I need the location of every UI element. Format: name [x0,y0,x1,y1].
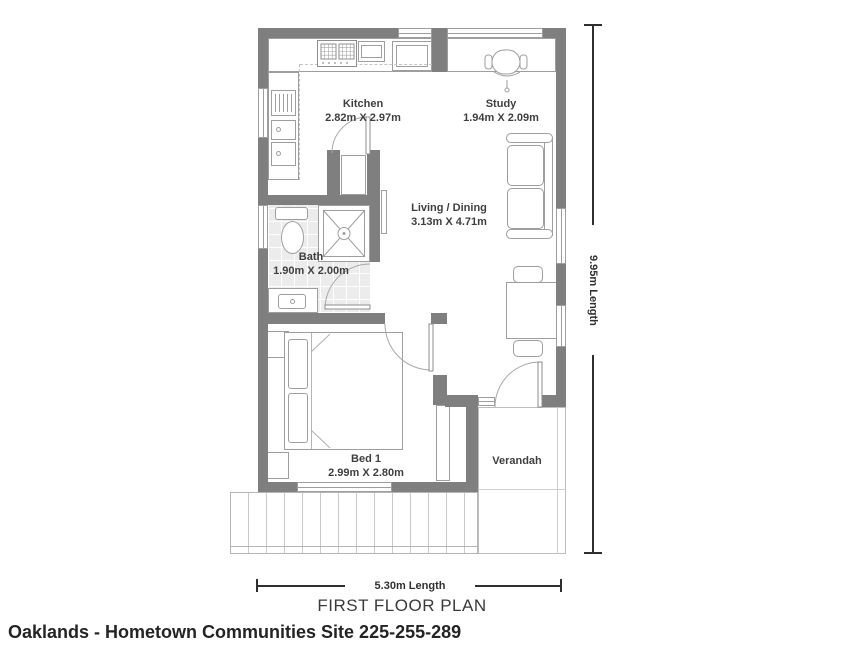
plan-title: FIRST FLOOR PLAN [192,596,612,616]
vestibule-pier-1 [327,150,340,197]
sofa-back [544,137,553,236]
entry-wall-right [540,395,566,407]
bed1-dims: 2.99m X 2.80m [303,466,429,480]
entry-door [495,362,542,407]
dining-table [506,282,557,339]
window-bedroom-bottom [297,482,392,492]
wall-bedroom-top-b [431,313,447,324]
deck-rail-line [231,546,477,547]
wall-top-left [258,28,398,38]
kitchen-sink-1 [271,120,296,140]
window-top-study [447,28,543,38]
window-kitchen-left [258,88,268,138]
window-living-right-1 [556,208,566,264]
entry-door-arc [495,362,540,407]
nook-wall-v [466,407,478,482]
hall-cupboard [341,155,366,195]
dimension-v-tick-top [584,24,602,26]
window-bath-left [258,205,268,249]
bath-label: Bath 1.90m X 2.00m [248,250,374,278]
wall-left-a [258,28,268,88]
verandah-floor-line-h [478,489,566,490]
kitchen-dims: 2.82m X 2.97m [300,111,426,125]
overhead-cabinet-dash-h [300,64,432,65]
nook-wall-h [445,395,478,407]
site-caption: Oaklands - Hometown Communities Site 225… [8,622,461,643]
dimension-v-tick-bottom [584,552,602,554]
dimension-h-label: 5.30m Length [345,578,475,594]
verandah-floor [478,407,566,554]
wall-right-b [556,264,566,305]
window-top-kitchen [398,28,432,38]
kitchen-appliance-inner [361,45,382,58]
entry-sidelight-window [478,397,495,406]
sofa-cushion-2 [507,188,544,229]
kitchen-sink-2 [271,142,296,166]
kitchen-name: Kitchen [300,97,426,111]
study-dims: 1.94m X 2.09m [438,111,564,125]
dimension-h-tick-right [560,579,562,592]
sofa-cushion-1 [507,145,544,186]
pillow-2 [288,393,308,443]
pillow-1 [288,339,308,389]
living-dining-dims: 3.13m X 4.71m [386,215,512,229]
wall-bottom-right [392,482,478,492]
bedroom-door-panel [429,324,433,371]
bedside-table-bottom [267,452,289,479]
living-dining-label: Living / Dining 3.13m X 4.71m [386,201,512,229]
dimension-v-label: 9.95m Length [583,225,603,355]
vestibule-pier-2 [367,150,380,197]
bed1-label: Bed 1 2.99m X 2.80m [303,452,429,480]
wall-pier-kitchen-study [432,28,447,72]
toilet-tank [275,207,308,220]
study-desk [447,38,556,72]
floor-plan: Kitchen 2.82m X 2.97m Study 1.94m X 2.09… [0,0,866,650]
window-living-right-2 [556,305,566,347]
study-label: Study 1.94m X 2.09m [438,97,564,125]
sink-2-drain [276,151,281,156]
bed1-name: Bed 1 [303,452,429,466]
vanity-drain [290,299,295,304]
bed-sheet-line [311,333,312,449]
wall-left-c [258,249,268,492]
robe [436,405,450,481]
sofa-armrest-top [506,133,553,143]
wall-kitchen-bath [258,195,380,205]
bath-name: Bath [248,250,374,264]
living-dining-name: Living / Dining [386,201,512,215]
wall-bottom-left [258,482,297,492]
verandah-label: Verandah [467,454,567,468]
dining-chair-top [513,266,543,283]
sofa-armrest-bottom [506,229,553,239]
verandah-name: Verandah [467,454,567,468]
dining-chair-bottom [513,340,543,357]
bath-dims: 1.90m X 2.00m [248,264,374,278]
verandah-floor-line-v [557,407,558,554]
dish-drainer [271,90,296,116]
wall-bedroom-top-a [258,313,385,324]
dimension-h-tick-left [256,579,258,592]
deck [230,492,478,554]
kitchen-label: Kitchen 2.82m X 2.97m [300,97,426,125]
sink-1-drain [276,127,281,132]
study-name: Study [438,97,564,111]
